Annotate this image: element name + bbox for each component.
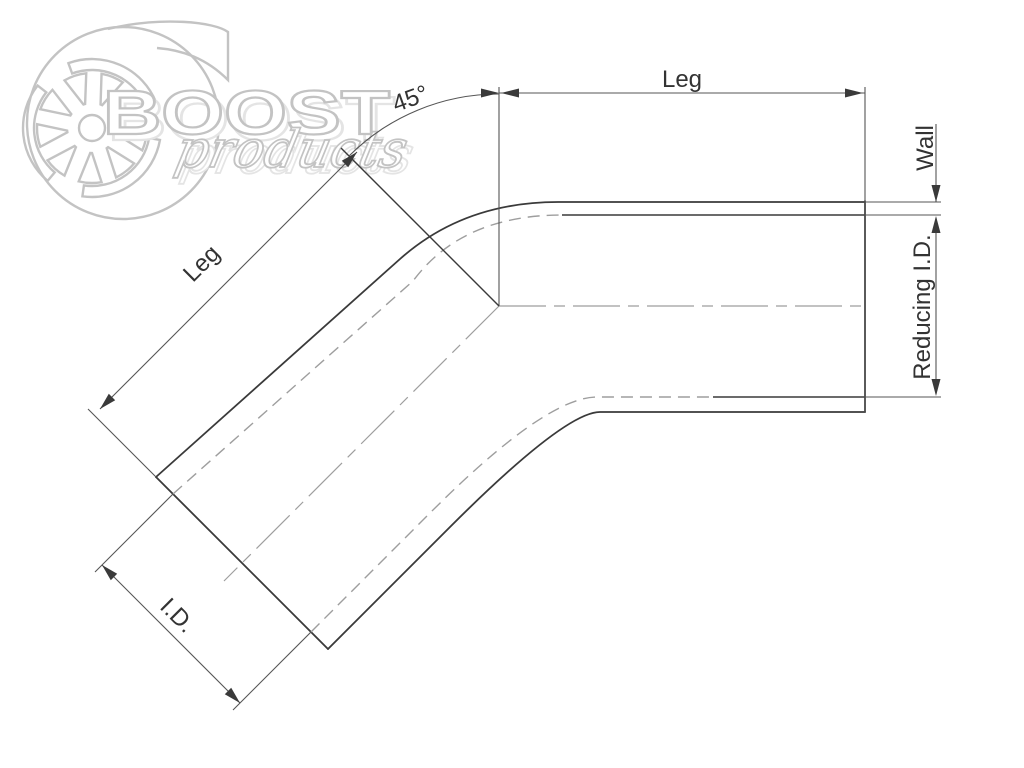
- label-leg-top: Leg: [662, 66, 702, 93]
- label-wall: Wall: [912, 125, 939, 171]
- pipe-outer-wall-bottom: [328, 412, 865, 649]
- turbo-blade-icon: [37, 124, 67, 147]
- turbo-outlet-flag-icon: [108, 22, 228, 80]
- centerline-diagonal: [224, 306, 499, 581]
- dimension-line-id: [102, 565, 240, 703]
- label-inner-diameter: I.D.: [155, 593, 200, 638]
- brand-script-text: products: [170, 120, 413, 180]
- extension-line-id-lower: [233, 632, 311, 710]
- turbo-blade-icon: [65, 73, 87, 104]
- pipe-inner-wall-top-hidden: [173, 215, 562, 494]
- extension-line-vertex-diagonal: [341, 148, 499, 306]
- pipe-outer-wall-top: [156, 202, 865, 477]
- pipe-inner-wall-bottom-hidden: [311, 397, 713, 632]
- extension-line-id-upper: [95, 494, 173, 572]
- arrowhead-leg-top-left: [501, 89, 519, 98]
- extension-line-large-end-face: [88, 409, 156, 477]
- arrowhead-reducing-id-down: [932, 379, 941, 396]
- label-angle-45: 45°: [389, 80, 432, 118]
- label-reducing-id: Reducing I.D.: [909, 234, 936, 379]
- arrowhead-reducing-id-up: [932, 216, 941, 233]
- arrowhead-wall-down: [932, 185, 941, 202]
- arrowhead-leg-top-right: [845, 89, 863, 98]
- label-leg-diagonal: Leg: [178, 240, 225, 287]
- turbo-wheel-hub-icon: [79, 115, 105, 141]
- watermark-logo: BOOST products BOOST products: [23, 22, 419, 219]
- pipe-drawing: [156, 201, 868, 649]
- technical-drawing-canvas: BOOST products BOOST products: [0, 0, 1024, 768]
- drawing-page: BOOST products BOOST products: [0, 0, 1024, 768]
- arrowhead-angle-arc: [481, 89, 499, 98]
- dimension-line-leg-diagonal: [100, 152, 357, 409]
- turbo-blade-icon: [79, 153, 102, 183]
